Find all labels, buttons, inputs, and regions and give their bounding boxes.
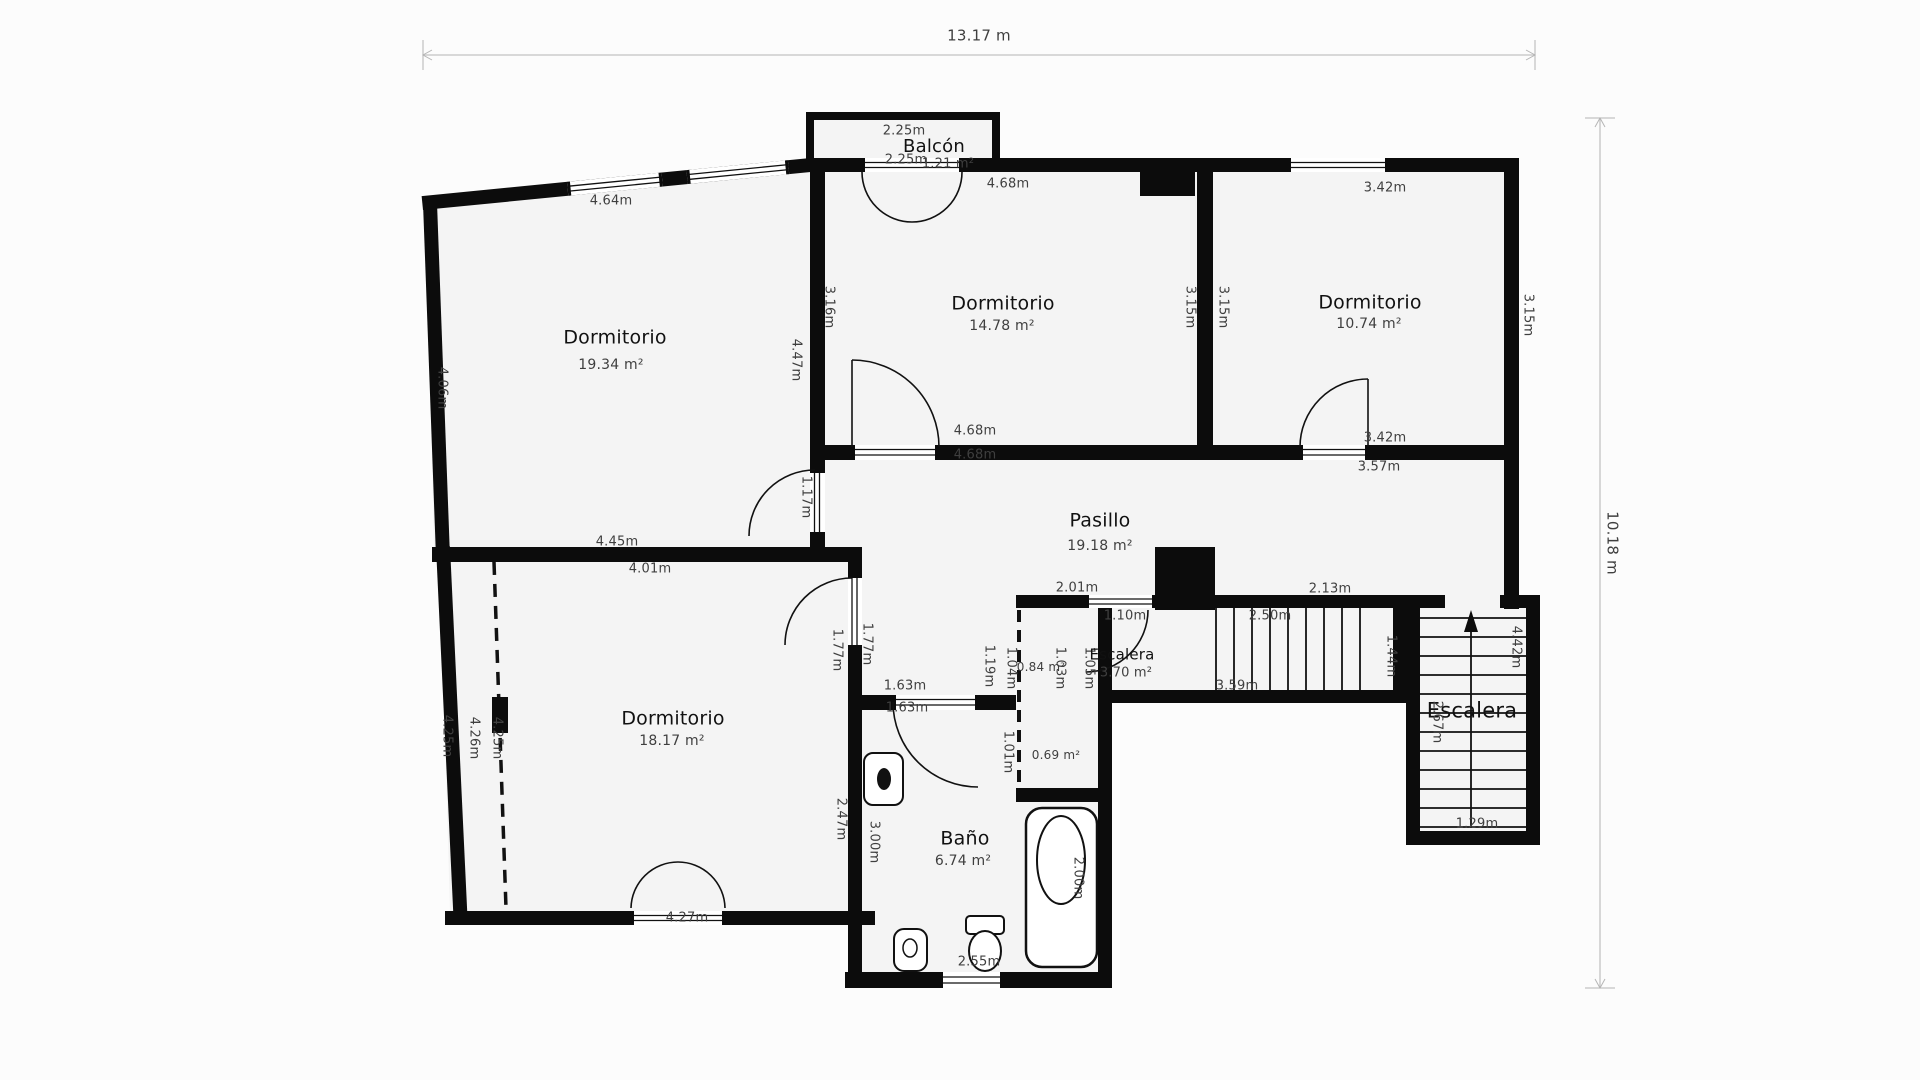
wall-stair-block	[1155, 547, 1215, 610]
room-escalera-2	[1420, 600, 1526, 838]
wall-right-outer	[1504, 158, 1519, 609]
window-dorm4	[631, 911, 725, 925]
room-escalera-1	[1100, 600, 1393, 696]
wall-notch	[1140, 158, 1195, 196]
dimension-top	[423, 40, 1535, 70]
floor-plan-canvas: 13.17 m10.18 m2.25mBalcón2.25m1.21 m²4.6…	[0, 0, 1920, 1080]
room-dormitorio-3	[1207, 168, 1507, 452]
room-dormitorio-2	[817, 168, 1203, 452]
window-bano	[940, 972, 1003, 988]
room-pasillo-arm	[855, 552, 1020, 702]
room-dormitorio-1	[427, 167, 817, 552]
floor-plan-drawing	[0, 0, 1920, 1080]
toilet-icon	[966, 916, 1004, 971]
door-bano	[893, 695, 978, 710]
dimension-right	[1585, 118, 1615, 988]
bidet-icon	[894, 929, 927, 971]
room-balcon	[814, 120, 992, 160]
balcony-door	[862, 158, 962, 172]
door-dorm3	[1300, 445, 1368, 460]
door-escalera	[1086, 595, 1155, 608]
bathtub-icon	[1026, 808, 1097, 967]
door-dorm2	[852, 445, 938, 460]
window	[1288, 158, 1388, 172]
door-dorm1	[810, 470, 825, 535]
room-dormitorio-4	[440, 560, 848, 913]
sink-icon	[864, 753, 903, 805]
wall-dorm1-dorm2	[810, 158, 825, 470]
door-dorm4	[848, 575, 862, 648]
wall-dorm1-dorm4	[432, 547, 862, 562]
wall-dorm2-dorm3	[1197, 172, 1213, 460]
